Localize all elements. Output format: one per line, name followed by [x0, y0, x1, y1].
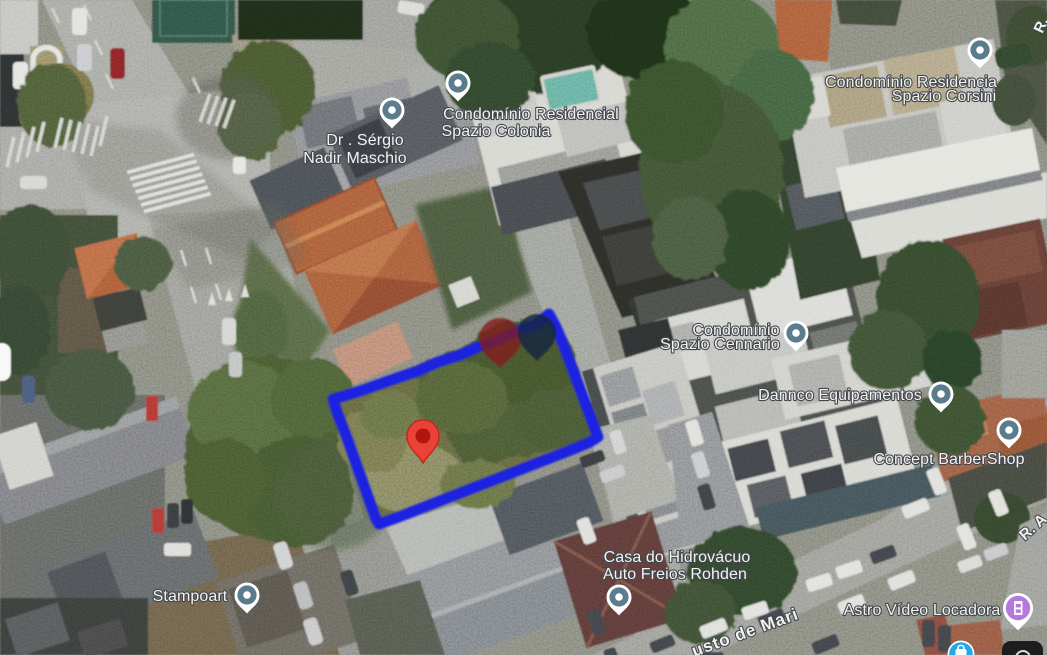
svg-text:Spazio Colonia: Spazio Colonia — [441, 123, 550, 140]
svg-text:Spazio Corsini: Spazio Corsini — [892, 88, 997, 105]
svg-text:Stampoart: Stampoart — [153, 588, 228, 605]
svg-text:Spazio Cennario: Spazio Cennario — [660, 336, 780, 353]
svg-text:Auto Freios Rohden: Auto Freios Rohden — [603, 566, 747, 583]
svg-text:Condomínio Residencial: Condomínio Residencial — [443, 106, 619, 123]
svg-text:Dannco Equipamentos: Dannco Equipamentos — [758, 387, 922, 404]
svg-text:Casa do Hidrovácuo: Casa do Hidrovácuo — [604, 549, 751, 566]
svg-text:Concept BarberShop: Concept BarberShop — [873, 451, 1024, 468]
svg-text:Dr . Sérgio: Dr . Sérgio — [326, 132, 404, 149]
svg-text:Astro Vídeo Locadora: Astro Vídeo Locadora — [844, 602, 1001, 619]
svg-text:Nadir Maschio: Nadir Maschio — [303, 150, 407, 167]
